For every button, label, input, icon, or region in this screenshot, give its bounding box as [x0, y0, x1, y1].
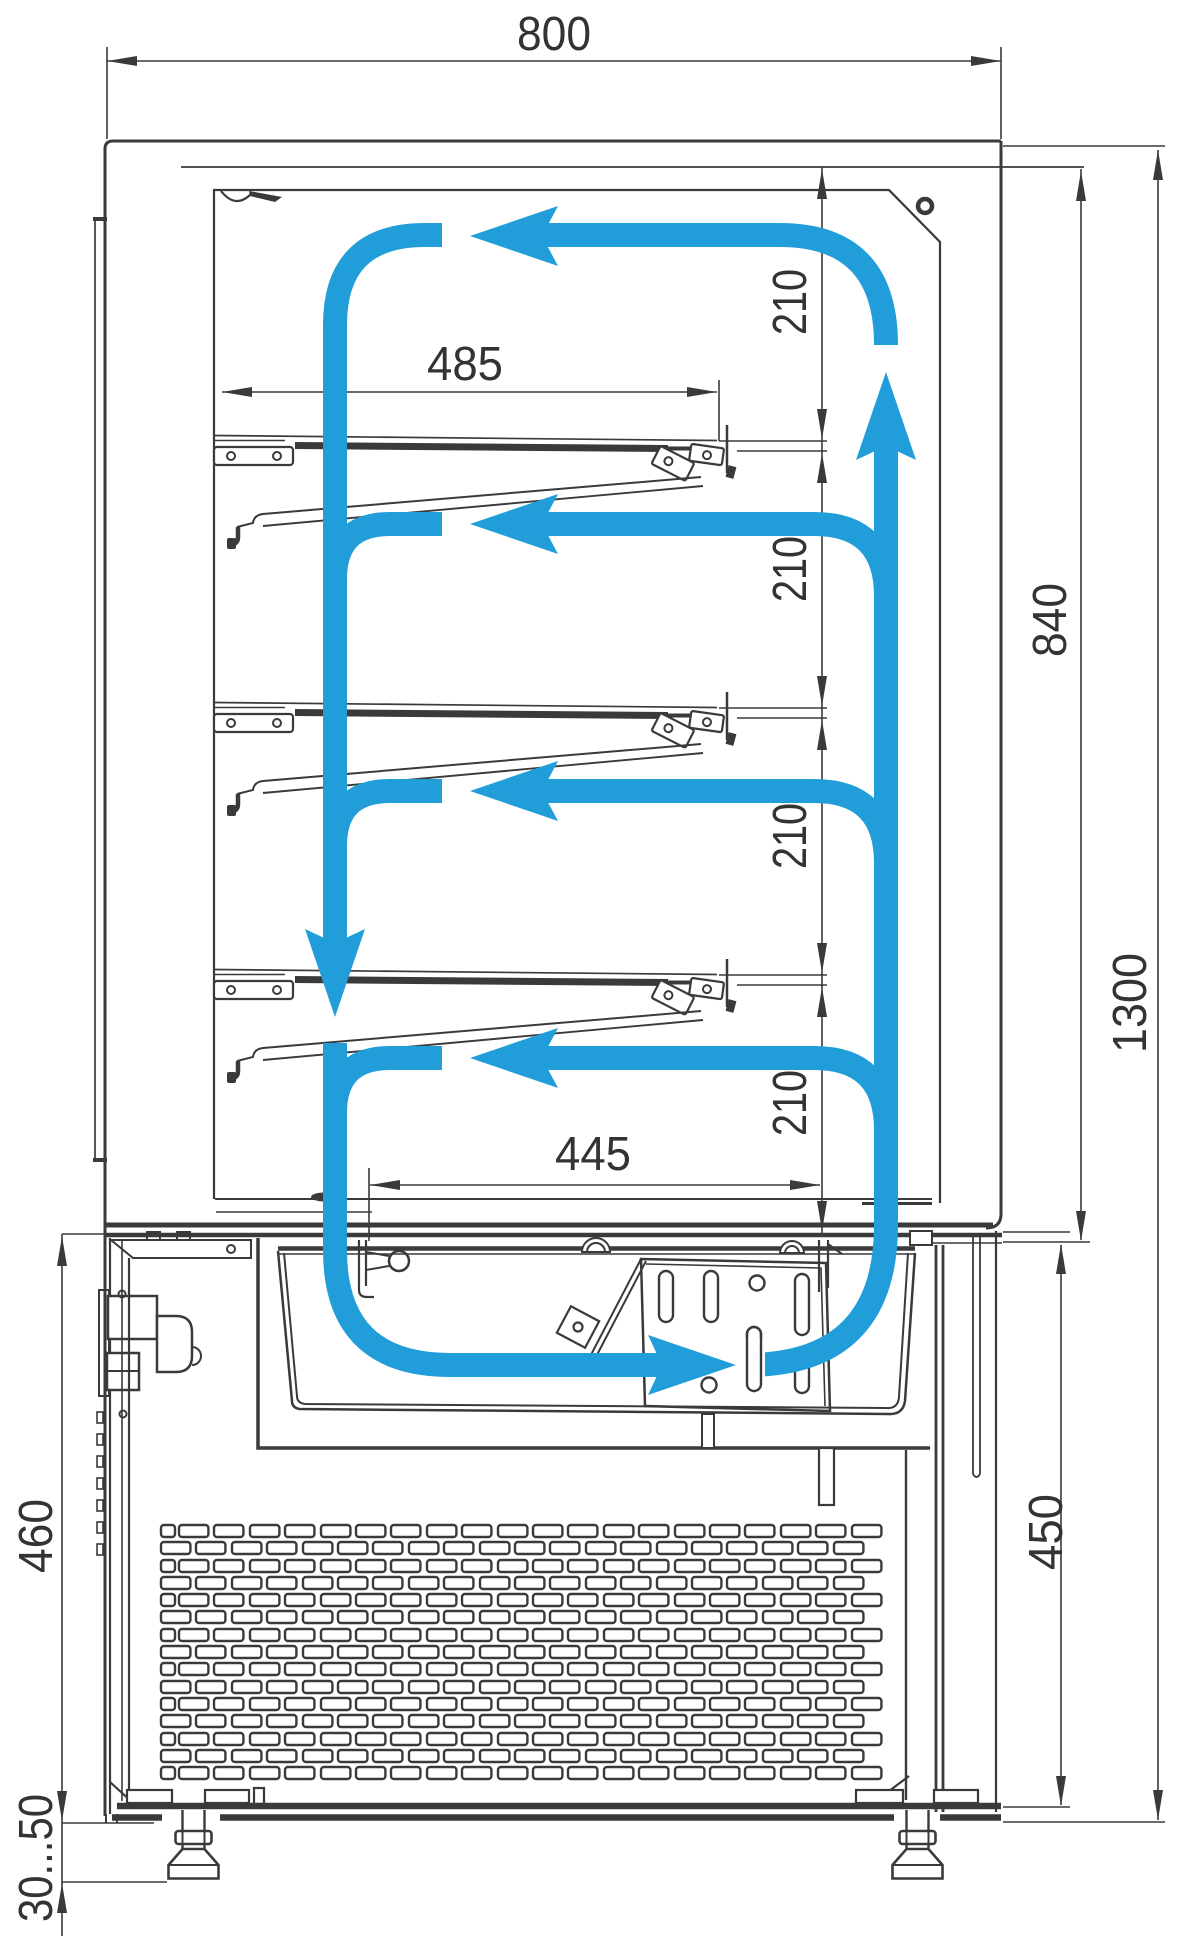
svg-text:450: 450	[1020, 1494, 1073, 1570]
svg-text:30...50: 30...50	[10, 1794, 63, 1922]
svg-text:840: 840	[1024, 583, 1077, 657]
svg-text:1300: 1300	[1104, 953, 1157, 1053]
svg-text:800: 800	[517, 8, 591, 61]
svg-text:485: 485	[427, 338, 503, 391]
svg-text:210: 210	[764, 269, 817, 335]
svg-text:210: 210	[764, 1070, 817, 1136]
svg-text:210: 210	[764, 803, 817, 869]
svg-text:445: 445	[555, 1128, 631, 1181]
svg-text:460: 460	[10, 1499, 63, 1573]
svg-text:210: 210	[764, 536, 817, 602]
